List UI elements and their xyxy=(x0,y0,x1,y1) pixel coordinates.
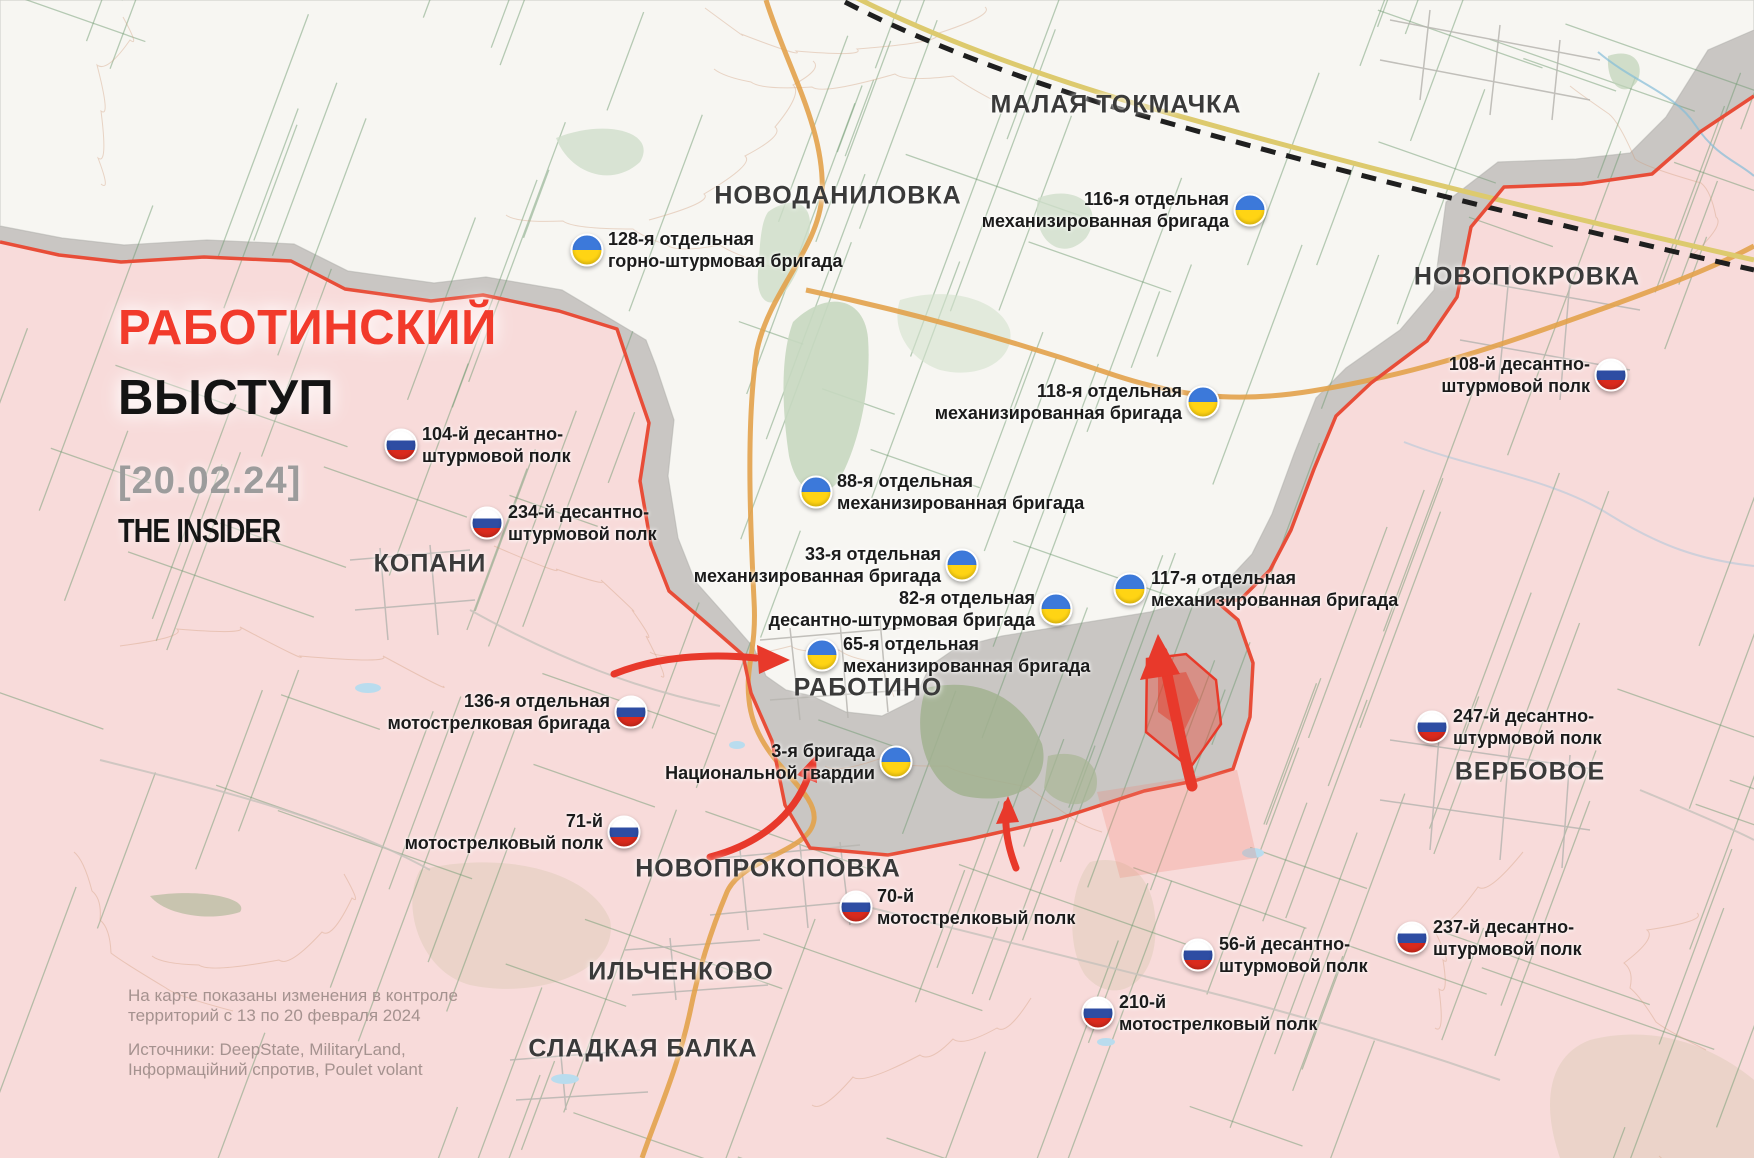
ukraine-flag-icon xyxy=(880,746,913,779)
unit-label-108-dshp: 108-й десантно-штурмовой полк xyxy=(1441,353,1590,397)
unit-name-line2: механизированная бригада xyxy=(694,565,941,587)
place-label-verbovoe: ВЕРБОВОЕ xyxy=(1455,758,1605,787)
unit-label-104-dshp: 104-й десантно-штурмовой полк xyxy=(422,423,571,467)
ukraine-flag-icon xyxy=(571,234,604,267)
unit-name-line1: 70-й xyxy=(877,885,1075,907)
unit-name-line1: 247-й десантно- xyxy=(1453,705,1602,727)
unit-label-136-omsbr: 136-я отдельнаямотострелковая бригада xyxy=(388,690,610,734)
note-sources-line1: Источники: DeepState, MilitaryLand, xyxy=(128,1040,458,1060)
note-coverage-line2: территорий с 13 по 20 февраля 2024 xyxy=(128,1006,458,1026)
unit-name-line2: механизированная бригада xyxy=(1151,589,1398,611)
unit-name-line2: мотострелковый полк xyxy=(1119,1013,1317,1035)
note-coverage-line1: На карте показаны изменения в контроле xyxy=(128,986,458,1006)
unit-name-line2: механизированная бригада xyxy=(837,492,1084,514)
map-notes: На карте показаны изменения в контроле т… xyxy=(128,986,458,1080)
unit-label-70-msp: 70-ймотострелковый полк xyxy=(877,885,1075,929)
unit-label-247-dshp: 247-й десантно-штурмовой полк xyxy=(1453,705,1602,749)
unit-name-line2: мотострелковый полк xyxy=(405,832,603,854)
unit-name-line1: 118-я отдельная xyxy=(935,380,1182,402)
unit-name-line1: 136-я отдельная xyxy=(388,690,610,712)
russia-flag-icon xyxy=(608,816,641,849)
unit-name-line1: 116-я отдельная xyxy=(982,188,1229,210)
unit-label-210-msp: 210-ймотострелковый полк xyxy=(1119,991,1317,1035)
unit-name-line2: штурмовой полк xyxy=(422,445,571,467)
unit-label-65-ombr: 65-я отдельнаямеханизированная бригада xyxy=(843,633,1090,677)
unit-name-line1: 234-й десантно- xyxy=(508,501,657,523)
ukraine-flag-icon xyxy=(806,639,839,672)
ukraine-flag-icon xyxy=(1114,573,1147,606)
unit-name-line1: 237-й десантно- xyxy=(1433,916,1582,938)
ukraine-flag-icon xyxy=(946,549,979,582)
unit-name-line2: механизированная бригада xyxy=(982,210,1229,232)
russia-flag-icon xyxy=(615,696,648,729)
russia-flag-icon xyxy=(840,891,873,924)
russia-flag-icon xyxy=(1396,922,1429,955)
unit-name-line1: 88-я отдельная xyxy=(837,470,1084,492)
place-label-novodanilovka: НОВОДАНИЛОВКА xyxy=(714,182,961,211)
unit-name-line2: штурмовой полк xyxy=(1433,938,1582,960)
unit-label-128-ogshbr: 128-я отдельнаягорно-штурмовая бригада xyxy=(608,228,842,272)
unit-name-line2: десантно-штурмовая бригада xyxy=(769,609,1035,631)
russia-flag-icon xyxy=(385,429,418,462)
unit-name-line2: мотострелковая бригада xyxy=(388,712,610,734)
place-label-malaya-tokmachka: МАЛАЯ ТОКМАЧКА xyxy=(991,91,1242,120)
unit-name-line1: 3-я бригада xyxy=(665,740,875,762)
unit-name-line2: горно-штурмовая бригада xyxy=(608,250,842,272)
unit-name-line1: 210-й xyxy=(1119,991,1317,1013)
russia-flag-icon xyxy=(1595,359,1628,392)
place-label-kopani: КОПАНИ xyxy=(374,550,487,579)
unit-name-line1: 82-я отдельная xyxy=(769,587,1035,609)
place-label-ilchenkovo: ИЛЬЧЕНКОВО xyxy=(588,958,773,987)
unit-label-118-ombr: 118-я отдельнаямеханизированная бригада xyxy=(935,380,1182,424)
place-label-rabotino: РАБОТИНО xyxy=(794,674,943,703)
place-label-novoprokopovka: НОВОПРОКОПОВКА xyxy=(635,855,901,884)
unit-name-line1: 33-я отдельная xyxy=(694,543,941,565)
unit-name-line2: штурмовой полк xyxy=(508,523,657,545)
unit-name-line1: 65-я отдельная xyxy=(843,633,1090,655)
ukraine-flag-icon xyxy=(800,476,833,509)
unit-name-line2: механизированная бригада xyxy=(935,402,1182,424)
unit-label-237-dshp: 237-й десантно-штурмовой полк xyxy=(1433,916,1582,960)
unit-label-3-ngu: 3-я бригадаНациональной гвардии xyxy=(665,740,875,784)
unit-name-line2: Национальной гвардии xyxy=(665,762,875,784)
unit-name-line1: 56-й десантно- xyxy=(1219,933,1368,955)
unit-name-line1: 128-я отдельная xyxy=(608,228,842,250)
russia-flag-icon xyxy=(1182,939,1215,972)
unit-label-56-dshp: 56-й десантно-штурмовой полк xyxy=(1219,933,1368,977)
ukraine-flag-icon xyxy=(1187,386,1220,419)
russia-flag-icon xyxy=(1416,711,1449,744)
unit-name-line2: механизированная бригада xyxy=(843,655,1090,677)
russia-flag-icon xyxy=(471,507,504,540)
unit-label-117-ombr: 117-я отдельнаямеханизированная бригада xyxy=(1151,567,1398,611)
map-title-line2: ВЫСТУП xyxy=(118,370,497,426)
unit-name-line1: 108-й десантно- xyxy=(1441,353,1590,375)
note-sources-line2: Інформаційний спротив, Poulet volant xyxy=(128,1060,458,1080)
labels-overlay: РАБОТИНСКИЙ ВЫСТУП [20.02.24] THE INSIDE… xyxy=(0,0,1754,1158)
unit-name-line1: 104-й десантно- xyxy=(422,423,571,445)
russia-flag-icon xyxy=(1082,997,1115,1030)
unit-label-234-dshp: 234-й десантно-штурмовой полк xyxy=(508,501,657,545)
map-title-line1: РАБОТИНСКИЙ xyxy=(118,300,497,356)
unit-label-71-msp: 71-ймотострелковый полк xyxy=(405,810,603,854)
brand-logo: THE INSIDER xyxy=(118,512,429,550)
map-infographic: РАБОТИНСКИЙ ВЫСТУП [20.02.24] THE INSIDE… xyxy=(0,0,1754,1158)
unit-label-33-ombr: 33-я отдельнаямеханизированная бригада xyxy=(694,543,941,587)
unit-name-line1: 71-й xyxy=(405,810,603,832)
unit-label-88-ombr: 88-я отдельнаямеханизированная бригада xyxy=(837,470,1084,514)
unit-label-116-ombr: 116-я отдельнаямеханизированная бригада xyxy=(982,188,1229,232)
unit-name-line1: 117-я отдельная xyxy=(1151,567,1398,589)
unit-name-line2: мотострелковый полк xyxy=(877,907,1075,929)
ukraine-flag-icon xyxy=(1040,593,1073,626)
unit-name-line2: штурмовой полк xyxy=(1453,727,1602,749)
unit-name-line2: штурмовой полк xyxy=(1219,955,1368,977)
unit-label-82-odshbr: 82-я отдельнаядесантно-штурмовая бригада xyxy=(769,587,1035,631)
unit-name-line2: штурмовой полк xyxy=(1441,375,1590,397)
ukraine-flag-icon xyxy=(1234,194,1267,227)
place-label-sladkaya-balka: СЛАДКАЯ БАЛКА xyxy=(528,1035,757,1064)
place-label-novopokrovka: НОВОПОКРОВКА xyxy=(1414,263,1640,292)
